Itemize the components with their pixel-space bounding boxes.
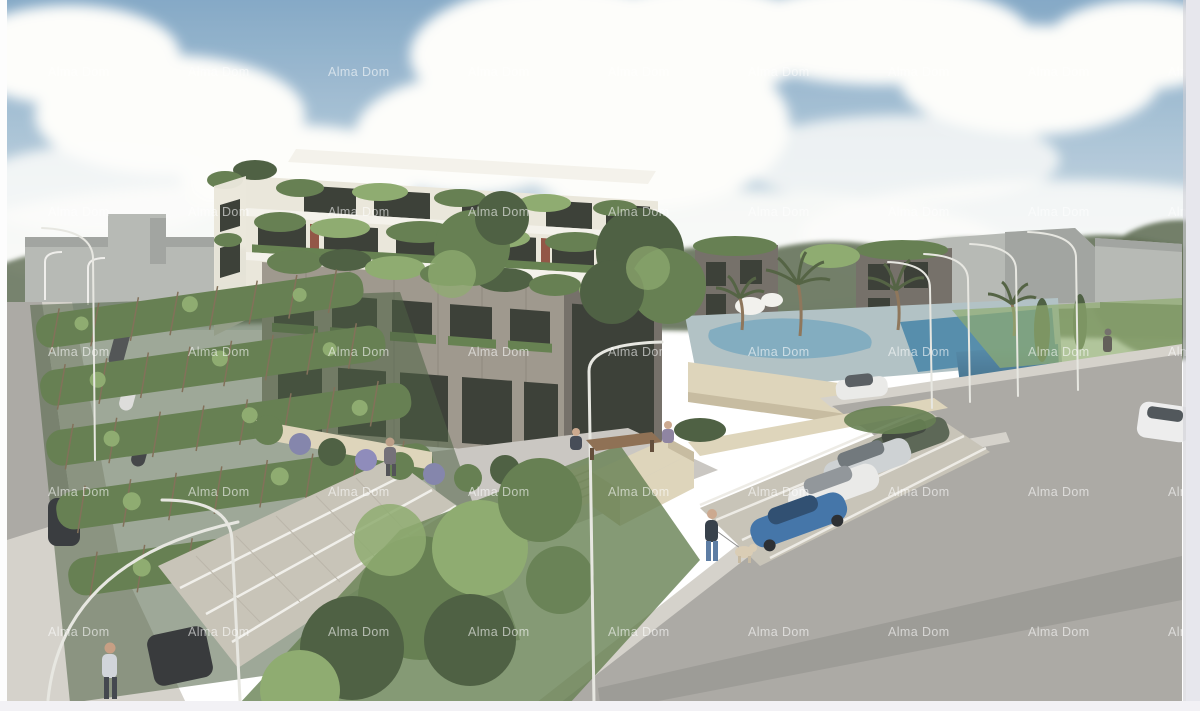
watermark-text: Alma Dom xyxy=(748,625,810,639)
scene: Alma DomAlma DomAlma DomAlma DomAlma Dom… xyxy=(0,0,1200,711)
watermark-text: Alma Dom xyxy=(888,205,950,219)
watermark-text: Alma Dom xyxy=(188,485,250,499)
watermark-text: Alma Dom xyxy=(48,345,110,359)
watermark-text: Alma Dom xyxy=(1028,625,1090,639)
watermark-text: Alma Dom xyxy=(888,485,950,499)
watermark-text: Alma Dom xyxy=(888,625,950,639)
watermark-text: Alma Dom xyxy=(468,345,530,359)
watermark-text: Alma Dom xyxy=(48,205,110,219)
watermark-text: Alma Dom xyxy=(468,485,530,499)
watermark-text: Alma Dom xyxy=(748,485,810,499)
watermark-text: Alma Dom xyxy=(1028,485,1090,499)
watermark-text: Alma Dom xyxy=(328,65,390,79)
watermark-text: Alma Dom xyxy=(468,65,530,79)
watermark-text: Alma Dom xyxy=(468,205,530,219)
watermark-text: Alma Dom xyxy=(328,345,390,359)
watermark-text: Alma Dom xyxy=(748,345,810,359)
watermark-text: Alma Dom xyxy=(1028,205,1090,219)
watermark-text: Alma Dom xyxy=(1028,65,1090,79)
watermark-text: Alma Dom xyxy=(888,65,950,79)
watermark-text: Alma Dom xyxy=(608,345,670,359)
watermark-text: Alma Dom xyxy=(48,65,110,79)
watermark-text: Alma Dom xyxy=(328,485,390,499)
watermark-text: Alma Dom xyxy=(328,625,390,639)
watermark-text: Alma Dom xyxy=(748,65,810,79)
watermark-text: Alma Dom xyxy=(188,625,250,639)
watermark-text: Alma Dom xyxy=(608,625,670,639)
watermark-text: Alma Dom xyxy=(468,625,530,639)
watermark-text: Alma Dom xyxy=(328,205,390,219)
watermark-text: Alma Dom xyxy=(608,485,670,499)
watermark-text: Alma Dom xyxy=(188,345,250,359)
watermark-text: Alma Dom xyxy=(888,345,950,359)
watermark-text: Alma Dom xyxy=(1028,345,1090,359)
haze-overlay xyxy=(0,0,1200,711)
watermark-text: Alma Dom xyxy=(188,65,250,79)
watermark-text: Alma Dom xyxy=(748,205,810,219)
watermark-text: Alma Dom xyxy=(188,205,250,219)
watermark-text: Alma Dom xyxy=(608,65,670,79)
watermark-text: Alma Dom xyxy=(48,485,110,499)
watermark-text: Alma Dom xyxy=(608,205,670,219)
render-image: Alma DomAlma DomAlma DomAlma DomAlma Dom… xyxy=(0,0,1200,711)
watermark-text: Alma Dom xyxy=(48,625,110,639)
